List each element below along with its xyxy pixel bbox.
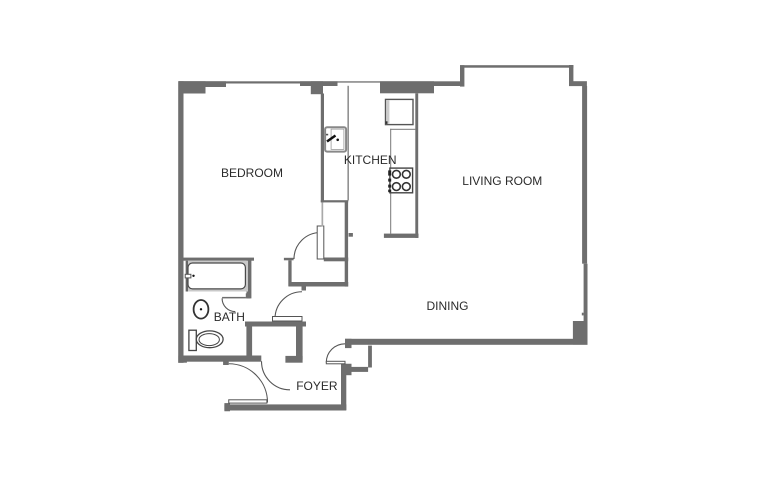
svg-text:DINING: DINING xyxy=(427,299,469,313)
svg-text:FOYER: FOYER xyxy=(296,379,338,393)
svg-text:KITCHEN: KITCHEN xyxy=(344,153,397,167)
svg-text:LIVING ROOM: LIVING ROOM xyxy=(462,174,542,188)
svg-text:BEDROOM: BEDROOM xyxy=(221,166,283,180)
svg-text:BATH: BATH xyxy=(214,310,245,324)
